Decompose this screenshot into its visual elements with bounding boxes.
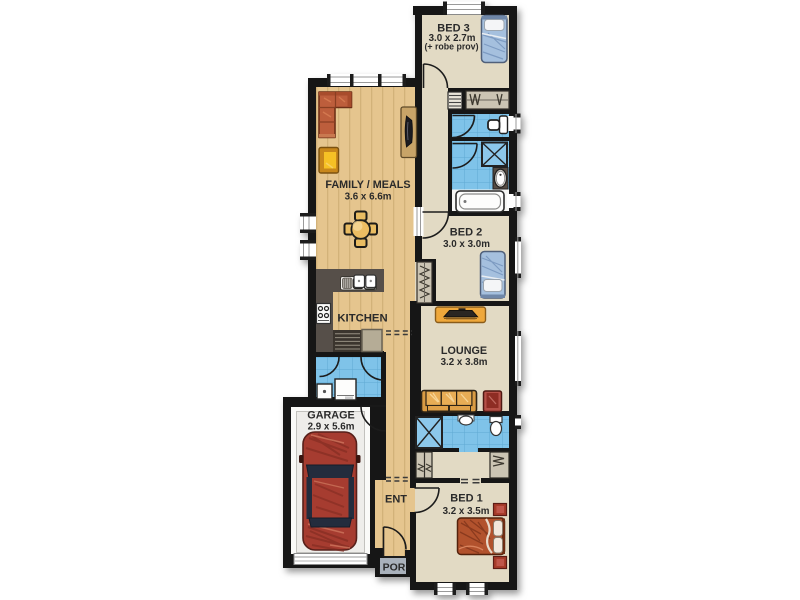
svg-text:ENT: ENT	[385, 494, 407, 506]
svg-text:FAMILY / MEALS: FAMILY / MEALS	[325, 179, 410, 191]
svg-text:(+ robe prov): (+ robe prov)	[424, 41, 478, 51]
svg-text:LOUNGE: LOUNGE	[441, 345, 487, 357]
svg-text:3.2 x 3.8m: 3.2 x 3.8m	[441, 357, 488, 368]
svg-text:KITCHEN: KITCHEN	[337, 313, 387, 325]
svg-text:2.9 x 5.6m: 2.9 x 5.6m	[308, 422, 355, 433]
svg-text:BED 2: BED 2	[450, 226, 482, 238]
svg-text:3.0 x 3.0m: 3.0 x 3.0m	[443, 239, 490, 250]
svg-text:BED 1: BED 1	[450, 492, 482, 504]
svg-text:3.2 x 3.5m: 3.2 x 3.5m	[443, 506, 490, 517]
svg-text:3.6 x 6.6m: 3.6 x 6.6m	[345, 192, 392, 203]
svg-text:POR: POR	[383, 562, 406, 574]
svg-text:GARAGE: GARAGE	[307, 409, 354, 421]
